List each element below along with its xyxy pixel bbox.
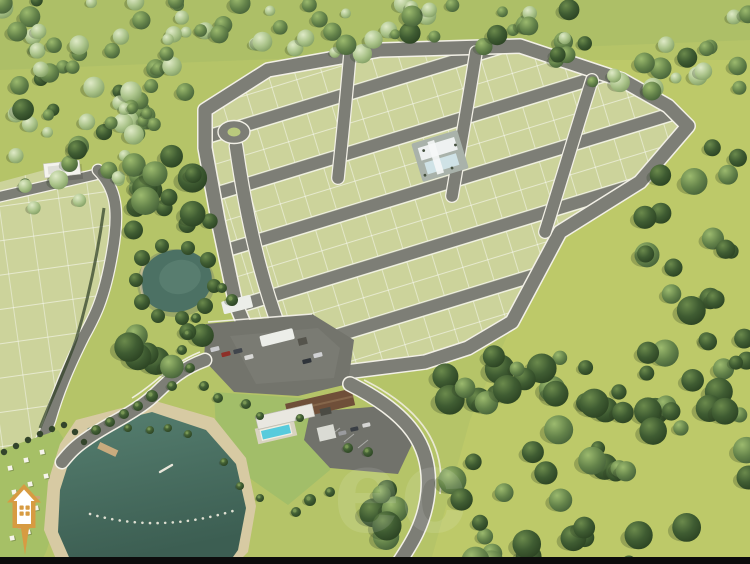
- aerial-render: ec: [0, 0, 750, 564]
- aerial-render-canvas: ec: [0, 0, 750, 564]
- watermark: ec: [333, 424, 466, 558]
- bottom-bar: [0, 557, 750, 564]
- roundabout: [218, 121, 250, 144]
